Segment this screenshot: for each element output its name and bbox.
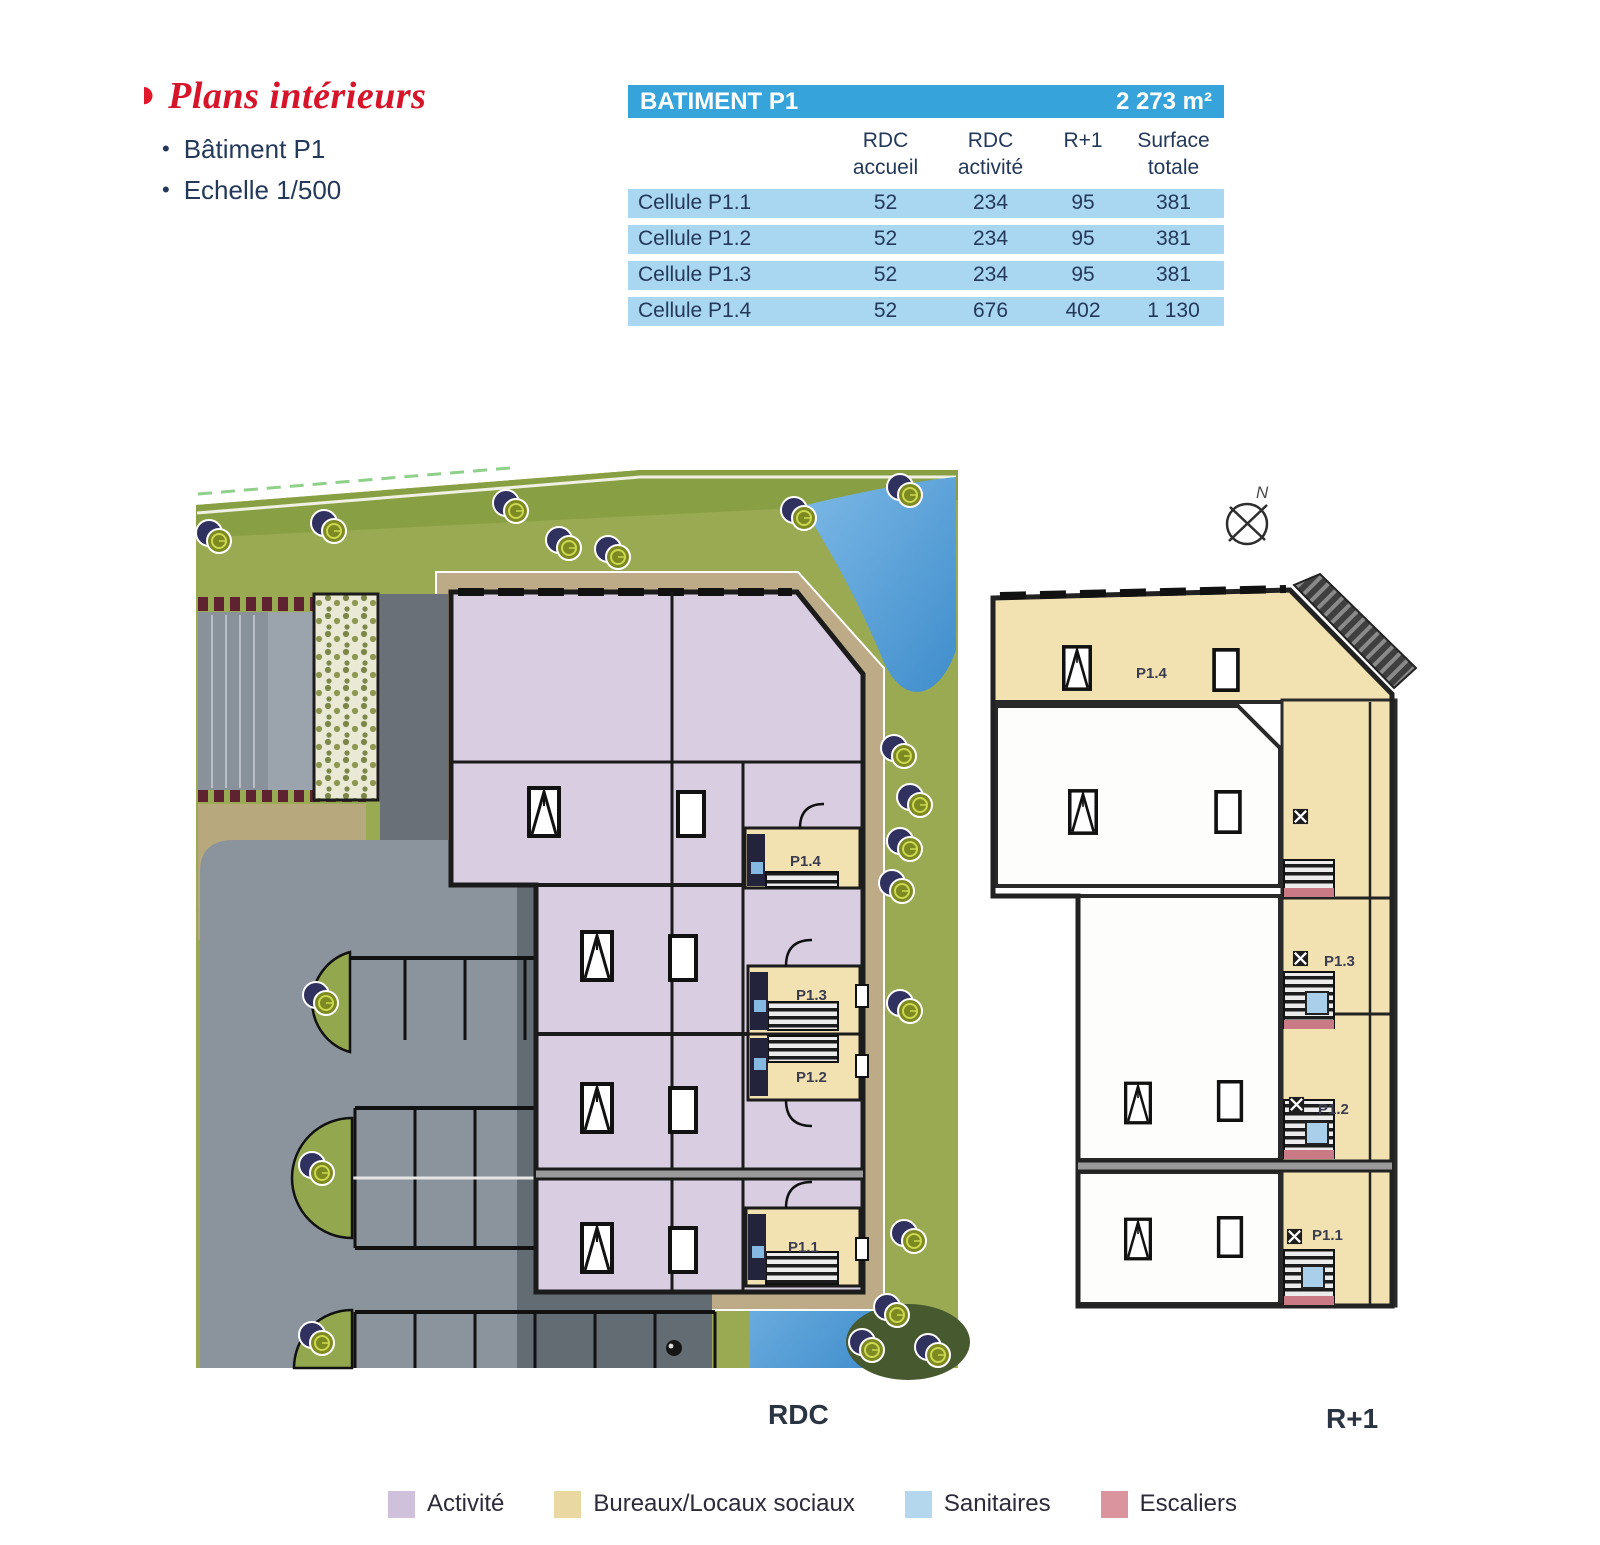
- legend-swatch: [1101, 1491, 1128, 1518]
- window-x-icon: [1126, 1083, 1151, 1123]
- window-x-icon: [1126, 1219, 1151, 1259]
- column-label: R+1: [1043, 127, 1123, 154]
- window-icon: [1219, 1218, 1242, 1257]
- cell-value: 52: [833, 263, 938, 287]
- sanitary-blue: [752, 1246, 764, 1258]
- table-row: Cellule P1.3 52 234 95 381: [628, 261, 1224, 290]
- stairs-icon: [766, 872, 838, 887]
- column-label: totale: [1123, 154, 1224, 181]
- window-icon: [678, 792, 704, 836]
- page-title: Plans intérieurs: [168, 74, 426, 118]
- cell-value: 234: [938, 227, 1043, 251]
- sanitary-blue: [1302, 1266, 1324, 1288]
- bullet-batiment: Bâtiment P1: [162, 134, 426, 165]
- r1-floor-label: R+1: [1326, 1403, 1378, 1434]
- expansion-joint: [1078, 1161, 1392, 1171]
- stairs-pink-accent: [1284, 1150, 1334, 1159]
- table-header: BATIMENT P1 2 273 m²: [628, 85, 1224, 118]
- table-row: Cellule P1.1 52 234 95 381: [628, 189, 1224, 218]
- cell-value: 234: [938, 191, 1043, 215]
- expansion-joint: [536, 1169, 863, 1179]
- stairs-pink-accent: [1284, 888, 1334, 897]
- rdc-cell-label-p11: P1.1: [788, 1239, 819, 1256]
- cell-value: 52: [833, 299, 938, 323]
- column-rdc-accueil: RDC accueil: [833, 127, 938, 182]
- stairs-pink-accent: [1284, 1020, 1334, 1029]
- legend-swatch: [554, 1491, 581, 1518]
- sanitary-block: [747, 834, 765, 886]
- cell-value: 95: [1043, 263, 1123, 287]
- rdc-floor-label: RDC: [768, 1399, 829, 1430]
- window-icon: [1216, 792, 1240, 832]
- sanitary-blue: [1306, 1122, 1328, 1144]
- sanitary-blue: [1306, 992, 1328, 1014]
- sanitary-blue: [754, 1058, 766, 1070]
- facade-door: [856, 1055, 868, 1077]
- r1-cell-label-p12: P1.2: [1318, 1101, 1349, 1118]
- column-label: Surface: [1123, 127, 1224, 154]
- rdc-entry-cells: [745, 804, 868, 1286]
- cell-value: 95: [1043, 227, 1123, 251]
- cell-value: 1 130: [1123, 299, 1224, 323]
- rdc-site-plan: P1.4 P1.3 P1.2 P1.1 RDC: [196, 468, 970, 1430]
- stairs-pink-accent: [1284, 1296, 1334, 1305]
- cell-value: 381: [1123, 227, 1224, 251]
- north-label: N: [1256, 483, 1269, 502]
- cell-value: 676: [938, 299, 1043, 323]
- window-x-icon: [529, 788, 559, 836]
- surface-table: BATIMENT P1 2 273 m² RDC accueil RDC act…: [628, 85, 1224, 333]
- window-x-icon: [582, 932, 612, 980]
- sanitary-x-icon: [1289, 1097, 1304, 1112]
- stairs-icon: [766, 1252, 838, 1284]
- facade-door: [856, 985, 868, 1007]
- r1-cell-label-p11: P1.1: [1312, 1227, 1343, 1244]
- window-icon: [670, 1228, 696, 1272]
- landscaped-strip: [314, 594, 378, 800]
- rdc-cell-label-p14: P1.4: [790, 853, 822, 870]
- cell-value: 381: [1123, 191, 1224, 215]
- legend-label: Bureaux/Locaux sociaux: [593, 1490, 855, 1518]
- window-icon: [670, 936, 696, 980]
- cell-value: 95: [1043, 191, 1123, 215]
- cell-value: 402: [1043, 299, 1123, 323]
- legend-label: Escaliers: [1140, 1490, 1237, 1518]
- r1-cell-label-p13: P1.3: [1324, 953, 1355, 970]
- cell-value: 52: [833, 191, 938, 215]
- row-label: Cellule P1.1: [628, 191, 833, 215]
- window-x-icon: [582, 1224, 612, 1272]
- stairs-icon: [768, 1002, 838, 1030]
- title-block: ◗ Plans intérieurs Bâtiment P1 Echelle 1…: [136, 74, 426, 216]
- legend-swatch: [388, 1491, 415, 1518]
- window-x-icon: [1070, 791, 1096, 833]
- table-total-surface: 2 273 m²: [1116, 88, 1212, 116]
- sanitary-x-icon: [1287, 1229, 1302, 1244]
- column-rdc-activite: RDC activité: [938, 127, 1043, 182]
- column-r1: R+1: [1043, 127, 1123, 182]
- window-icon: [1214, 650, 1238, 690]
- table-row: Cellule P1.2 52 234 95 381: [628, 225, 1224, 254]
- r1-void-room: [1078, 1172, 1280, 1304]
- legend-swatch: [905, 1491, 932, 1518]
- table-column-headers: RDC accueil RDC activité R+1 Surface tot…: [628, 118, 1224, 189]
- rdc-cell-label-p12: P1.2: [796, 1069, 827, 1086]
- cell-value: 52: [833, 227, 938, 251]
- row-label: Cellule P1.4: [628, 299, 833, 323]
- window-x-icon: [582, 1084, 612, 1132]
- cell-value: 234: [938, 263, 1043, 287]
- window-icon: [1219, 1082, 1242, 1121]
- north-arrow-icon: N: [1227, 483, 1269, 544]
- window-x-icon: [1064, 647, 1090, 689]
- cart-icon: [666, 1340, 682, 1356]
- section-arrow-icon: ◗: [136, 78, 160, 110]
- column-label: activité: [938, 154, 1043, 181]
- sanitary-x-icon: [1293, 809, 1308, 824]
- row-label: Cellule P1.2: [628, 227, 833, 251]
- legend-item-sanitaires: Sanitaires: [905, 1490, 1051, 1518]
- stairs-icon: [768, 1036, 838, 1062]
- legend-item-bureaux: Bureaux/Locaux sociaux: [554, 1490, 855, 1518]
- cell-value: 381: [1123, 263, 1224, 287]
- legend-label: Activité: [427, 1490, 504, 1518]
- legend-item-activite: Activité: [388, 1490, 504, 1518]
- table-row: Cellule P1.4 52 676 402 1 130: [628, 297, 1224, 326]
- sanitary-blue: [754, 1000, 766, 1012]
- row-label: Cellule P1.3: [628, 263, 833, 287]
- window-icon: [670, 1088, 696, 1132]
- rdc-cell-label-p13: P1.3: [796, 987, 827, 1004]
- facade-door: [856, 1238, 868, 1260]
- column-label: RDC: [833, 127, 938, 154]
- r1-void-room: [1078, 896, 1280, 1160]
- sanitary-blue: [751, 862, 763, 874]
- legend-label: Sanitaires: [944, 1490, 1051, 1518]
- column-spacer: [628, 127, 833, 182]
- bullet-echelle: Echelle 1/500: [162, 175, 426, 206]
- column-surface-totale: Surface totale: [1123, 127, 1224, 182]
- table-title: BATIMENT P1: [640, 88, 798, 116]
- r1-plan: P1.4 P1.3 P1.2 P1.1 R+1: [993, 574, 1416, 1434]
- color-legend: Activité Bureaux/Locaux sociaux Sanitair…: [388, 1490, 1287, 1518]
- title-bullet-list: Bâtiment P1 Echelle 1/500: [162, 134, 426, 206]
- column-label: accueil: [833, 154, 938, 181]
- column-label: RDC: [938, 127, 1043, 154]
- legend-item-escaliers: Escaliers: [1101, 1490, 1237, 1518]
- sanitary-x-icon: [1293, 951, 1308, 966]
- r1-cell-label-p14: P1.4: [1136, 665, 1168, 682]
